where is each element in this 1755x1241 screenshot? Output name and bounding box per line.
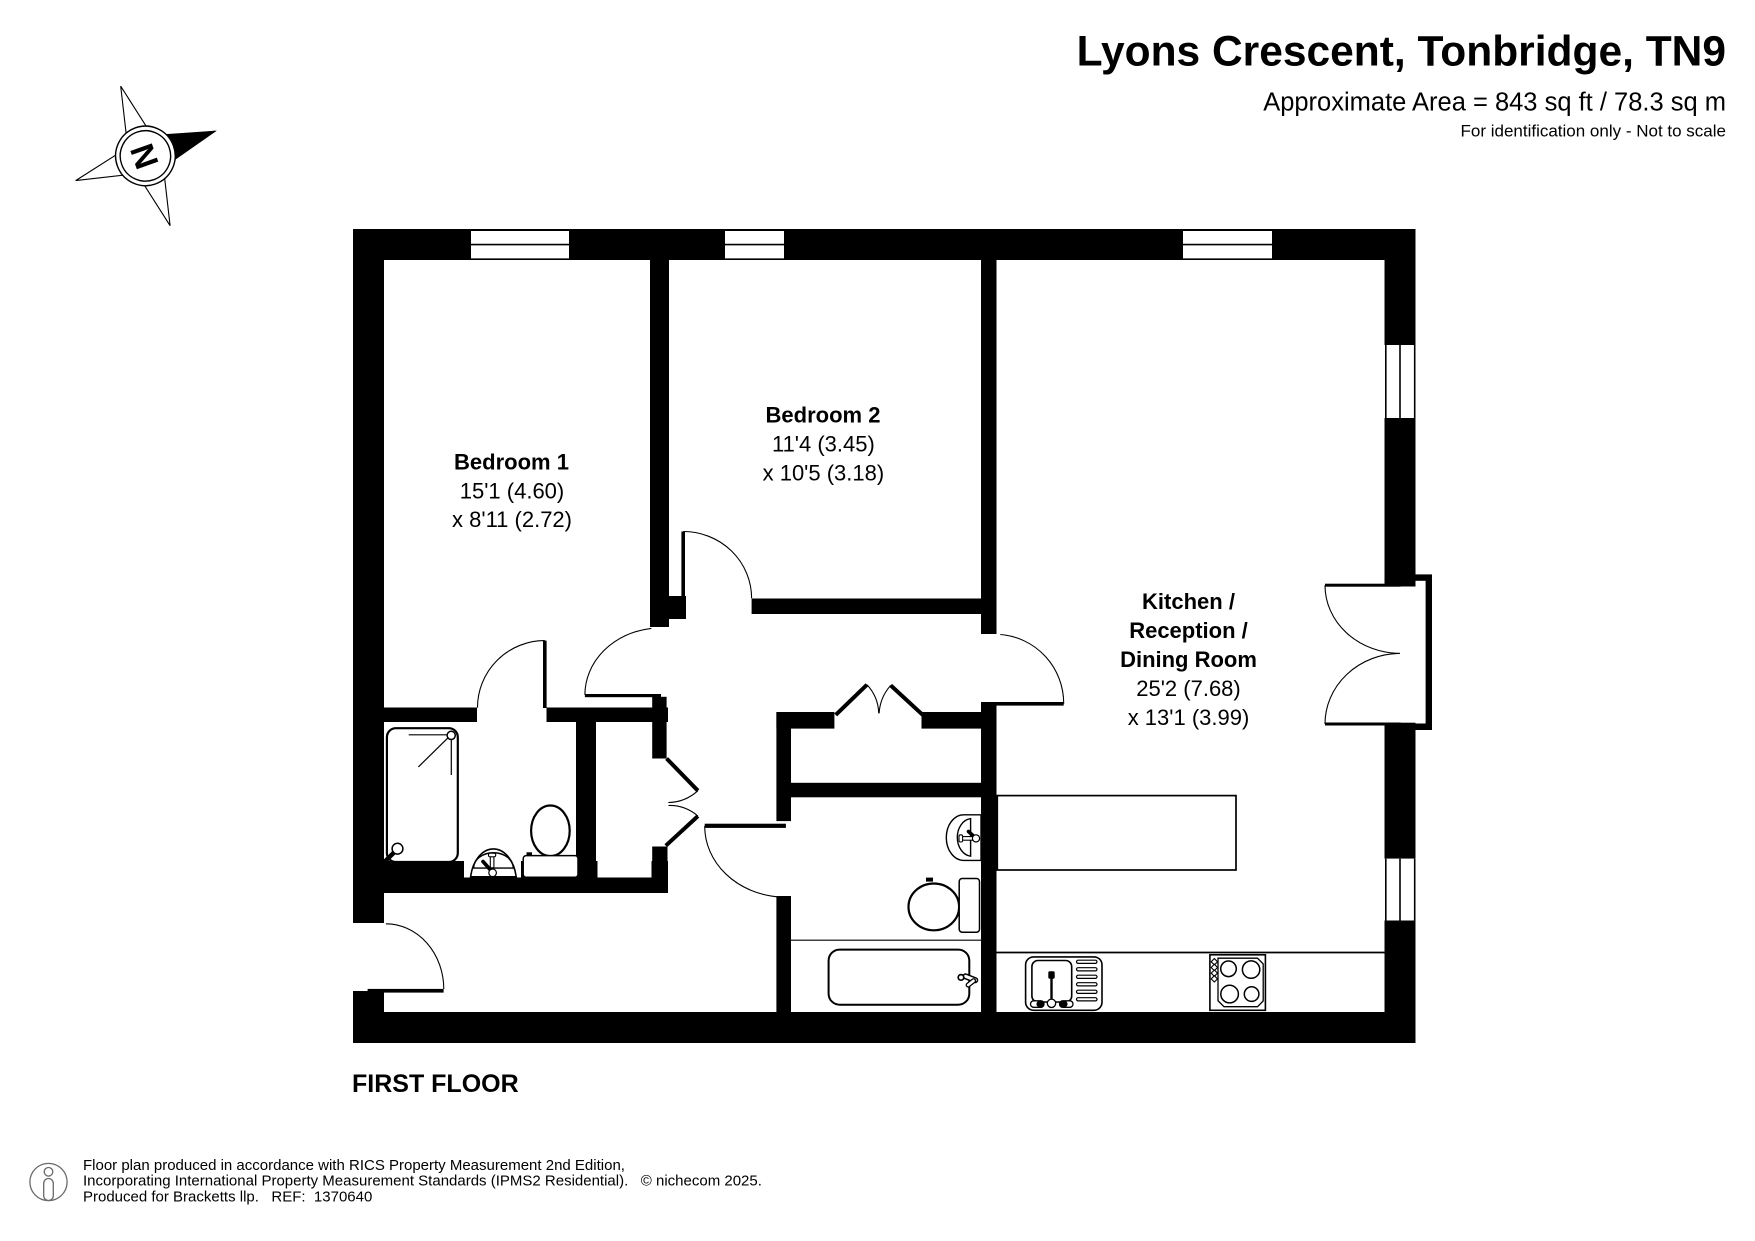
svg-text:Incorporating International Pr: Incorporating International Property Mea… <box>83 1173 762 1190</box>
svg-text:25'2 (7.68): 25'2 (7.68) <box>1136 676 1241 701</box>
svg-text:11'4 (3.45): 11'4 (3.45) <box>772 431 875 456</box>
svg-text:x 10'5 (3.18): x 10'5 (3.18) <box>763 460 885 485</box>
svg-text:Dining Room: Dining Room <box>1120 647 1257 672</box>
svg-text:x 8'11 (2.72): x 8'11 (2.72) <box>452 507 572 532</box>
svg-text:x 13'1 (3.99): x 13'1 (3.99) <box>1128 705 1250 730</box>
svg-text:Kitchen /: Kitchen / <box>1142 589 1235 614</box>
svg-text:Bedroom 1: Bedroom 1 <box>454 450 569 475</box>
svg-text:FIRST FLOOR: FIRST FLOOR <box>352 1070 519 1098</box>
svg-text:For identification only - Not: For identification only - Not to scale <box>1460 122 1726 141</box>
svg-text:Bedroom 2: Bedroom 2 <box>766 403 881 428</box>
svg-text:Reception /: Reception / <box>1129 618 1248 643</box>
svg-text:Approximate Area = 843 sq ft /: Approximate Area = 843 sq ft / 78.3 sq m <box>1263 89 1726 117</box>
svg-text:Produced for Bracketts llp.: Produced for Bracketts llp. REF: 1370640 <box>83 1189 372 1206</box>
svg-text:Lyons Crescent, Tonbridge, TN9: Lyons Crescent, Tonbridge, TN9 <box>1077 29 1726 76</box>
svg-text:Floor plan produced in accorda: Floor plan produced in accordance with R… <box>83 1157 625 1174</box>
svg-text:15'1 (4.60): 15'1 (4.60) <box>460 478 565 503</box>
